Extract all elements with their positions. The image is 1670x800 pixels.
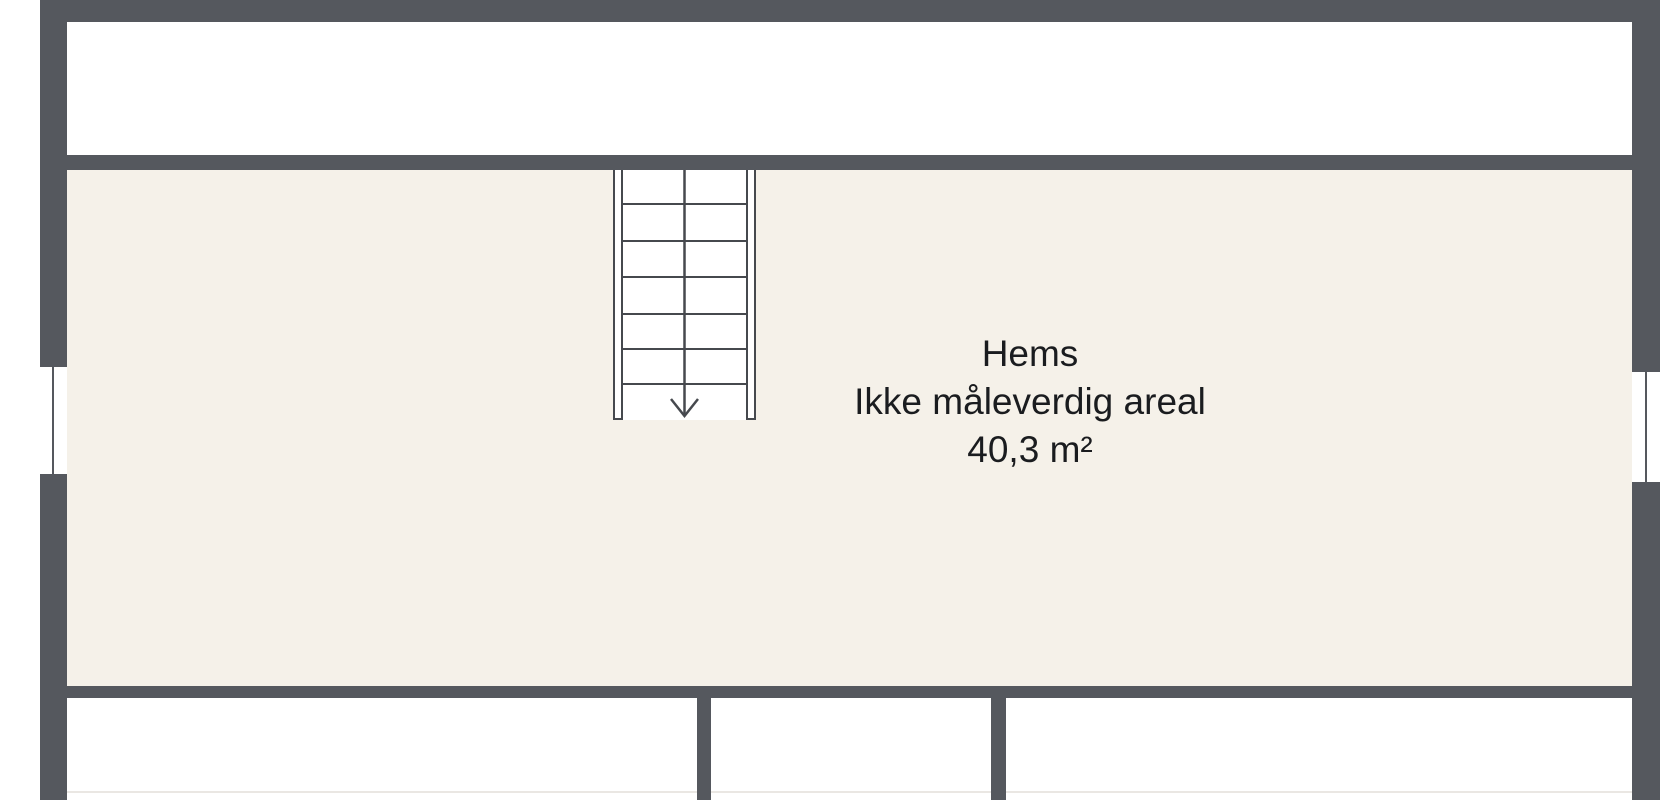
lower-room-right xyxy=(1006,698,1632,800)
wall-divider-upper xyxy=(67,155,1632,170)
window-pane-divider xyxy=(1645,372,1647,482)
lower-floor-faint-line xyxy=(67,791,1632,793)
lower-room-left xyxy=(67,698,697,800)
staircase xyxy=(613,170,756,420)
room-area: 40,3 m² xyxy=(780,426,1280,474)
room-label: Hems Ikke måleverdig areal 40,3 m² xyxy=(780,330,1280,474)
right-window xyxy=(1632,370,1660,484)
room-name: Hems xyxy=(780,330,1280,378)
wall-top xyxy=(40,0,1660,22)
left-window xyxy=(40,365,67,476)
window-pane-divider xyxy=(52,367,54,474)
wall-lower-left-partition xyxy=(697,698,711,800)
room-note: Ikke måleverdig areal xyxy=(780,378,1280,426)
lower-room-middle xyxy=(711,698,991,800)
stairs-down-arrow-icon xyxy=(613,170,756,420)
wall-lower-right-partition xyxy=(991,698,1006,800)
floorplan-canvas: Hems Ikke måleverdig areal 40,3 m² xyxy=(0,0,1670,800)
wall-bottom xyxy=(67,686,1632,698)
roof-space-upper xyxy=(67,22,1632,155)
